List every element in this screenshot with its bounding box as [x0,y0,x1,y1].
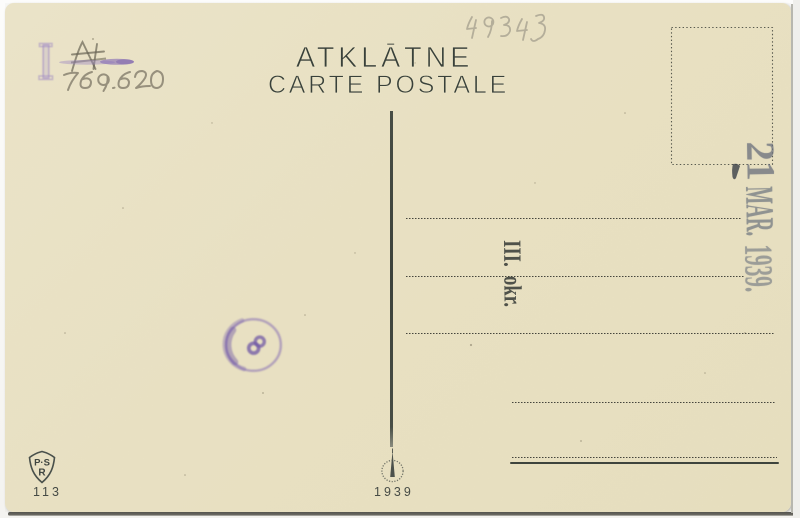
svg-text:R: R [38,468,46,479]
